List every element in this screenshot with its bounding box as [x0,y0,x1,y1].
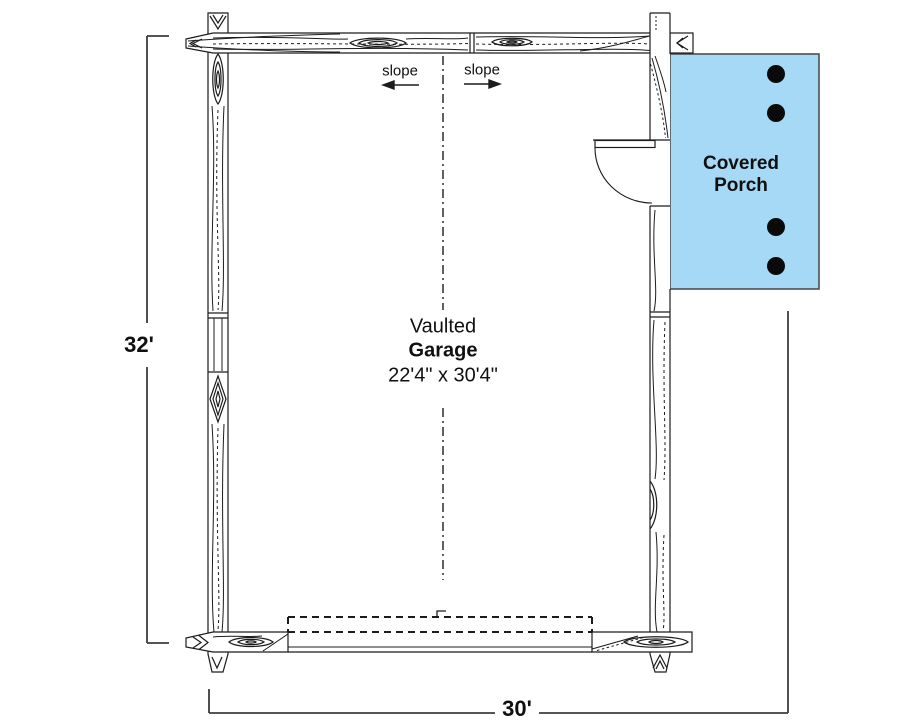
right-wall [650,13,670,672]
floor-plan-page: slope slope Vaulted Garage 22'4" x 30'4"… [0,0,910,723]
porch-post-3 [767,218,785,236]
porch-post-4 [767,257,785,275]
left-wall [208,13,228,672]
slope-arrow-right-head [489,80,500,88]
slope-arrow-left-head [383,81,394,89]
porch-post-1 [767,65,785,83]
slope-arrows [383,80,500,89]
slope-label-left: slope [382,63,418,80]
bottom-wall [186,632,692,652]
room-size-label: 22'4" x 30'4" [388,365,498,388]
porch-label-line2: Porch [703,175,779,197]
room-name-line1: Vaulted [410,316,476,339]
width-dimension-label: 30' [502,696,532,722]
room-name-line2: Garage [409,340,478,363]
height-dimension-label: 32' [124,332,154,358]
porch-label: Covered Porch [703,153,779,197]
top-wall [186,33,693,53]
door-swing-arc [595,148,652,203]
porch-label-line1: Covered [703,153,779,175]
porch-post-2 [767,104,785,122]
garage-door-opening [288,611,592,632]
slope-label-right: slope [464,62,500,79]
door-leaf [595,141,655,148]
